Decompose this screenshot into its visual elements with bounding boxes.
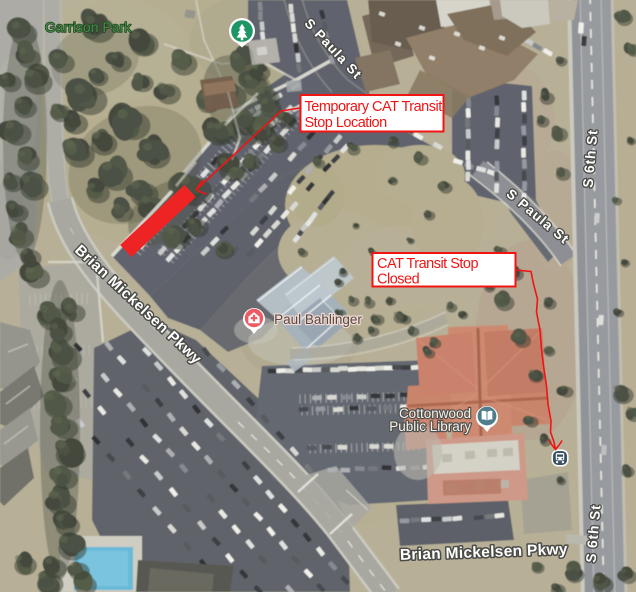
svg-text:Temporary CAT Transit: Temporary CAT Transit [305, 99, 443, 115]
svg-text:Public Library: Public Library [389, 419, 471, 434]
svg-text:Garrison Park: Garrison Park [45, 19, 132, 35]
svg-text:CAT Transit Stop: CAT Transit Stop [377, 256, 478, 272]
svg-text:Stop Location: Stop Location [305, 115, 388, 131]
svg-text:Paul Bahlinger: Paul Bahlinger [274, 312, 362, 327]
svg-text:Closed: Closed [377, 272, 420, 288]
